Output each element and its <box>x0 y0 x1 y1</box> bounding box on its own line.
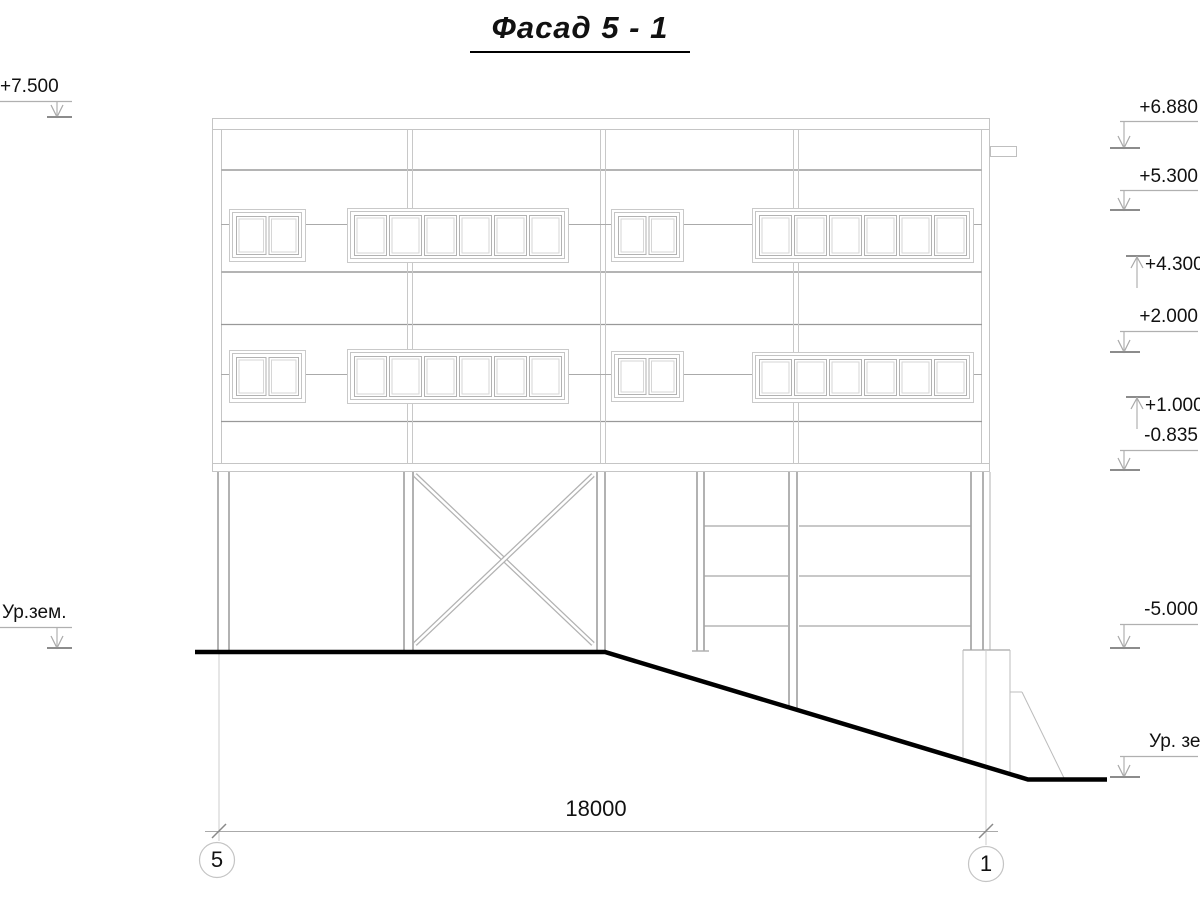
roof-canopy <box>991 147 1017 157</box>
level-label-ground-right: Ур. зем. <box>1149 732 1200 752</box>
level-label-minus-0835: -0.835 <box>1100 426 1198 446</box>
level-label-plus-5300: +5.300 <box>1100 167 1198 187</box>
level-label-plus-6880: +6.880 <box>1100 98 1198 118</box>
drawing-title: Фасад 5 - 1 <box>340 10 820 53</box>
axis-bubble-5: 5 <box>200 848 235 872</box>
level-label-ground-left: Ур.зем. <box>2 603 66 623</box>
facade-drawing-sheet: Фасад 5 - 1 +7.500 Ур.зем. +6.880 +5.300… <box>0 0 1200 900</box>
window-frame-line <box>230 210 306 262</box>
foundation-block <box>963 650 1064 778</box>
facade-linework <box>0 0 1200 900</box>
window-frame-line <box>348 350 569 404</box>
x-bracing <box>415 475 593 644</box>
window-frame-line <box>612 210 684 262</box>
drawing-title-text: Фасад 5 - 1 <box>470 10 691 53</box>
axis-bubble-1: 1 <box>969 852 1004 876</box>
window-frame-line <box>348 209 569 263</box>
level-label-minus-5000: -5.000 <box>1100 600 1198 620</box>
level-label-plus-2000: +2.000 <box>1100 307 1198 327</box>
facade-mullions <box>408 130 799 464</box>
level-markers <box>0 102 1198 778</box>
level-label-plus-1000: +1.000 <box>1145 396 1200 416</box>
window-frame-line <box>230 351 306 403</box>
dimension-line <box>205 824 998 838</box>
ground-line <box>195 652 1107 780</box>
stair-landing-lines <box>704 526 1010 650</box>
level-label-plus-7500: +7.500 <box>0 77 58 97</box>
level-label-plus-4300: +4.300 <box>1145 255 1200 275</box>
window-frame-line <box>753 209 974 263</box>
pilotis-columns <box>218 472 990 710</box>
dimension-value: 18000 <box>496 798 696 820</box>
